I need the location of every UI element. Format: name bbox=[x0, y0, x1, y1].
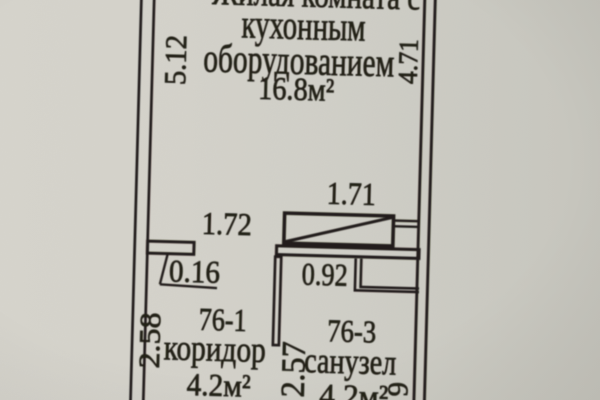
svg-text:4.71: 4.71 bbox=[393, 39, 424, 85]
svg-text:2.57: 2.57 bbox=[275, 341, 314, 398]
svg-text:1.71: 1.71 bbox=[326, 175, 376, 212]
svg-text:16.8м²: 16.8м² bbox=[258, 71, 335, 109]
svg-text:1.72: 1.72 bbox=[201, 205, 252, 242]
svg-text:5.12: 5.12 bbox=[158, 35, 193, 86]
svg-text:9: 9 bbox=[382, 382, 414, 397]
svg-text:2.58: 2.58 bbox=[133, 312, 168, 369]
svg-text:4.2м²: 4.2м² bbox=[319, 377, 389, 400]
svg-text:4.2м²: 4.2м² bbox=[186, 366, 251, 400]
svg-text:0.92: 0.92 bbox=[301, 255, 348, 292]
svg-text:коридор: коридор bbox=[163, 328, 266, 371]
svg-text:санузел: санузел bbox=[304, 340, 397, 382]
svg-text:0.16: 0.16 bbox=[169, 252, 221, 289]
